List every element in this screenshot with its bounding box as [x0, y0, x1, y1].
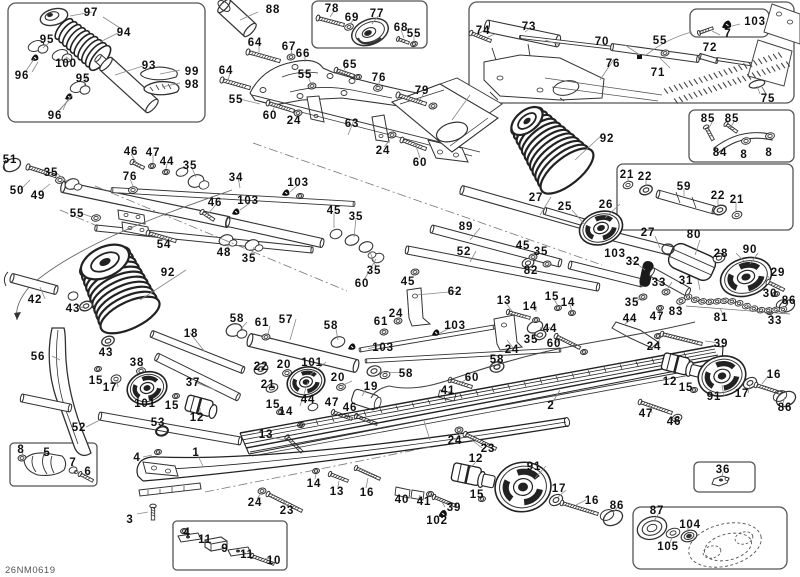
svg-text:12: 12: [663, 376, 677, 388]
svg-text:42: 42: [28, 294, 42, 306]
svg-text:13: 13: [330, 486, 344, 498]
svg-text:44: 44: [301, 394, 315, 406]
svg-text:51: 51: [3, 154, 17, 166]
svg-text:37: 37: [186, 377, 200, 389]
svg-text:62: 62: [448, 286, 462, 298]
svg-text:17: 17: [552, 483, 566, 495]
svg-text:75: 75: [761, 93, 775, 105]
svg-text:48: 48: [217, 247, 231, 259]
svg-text:81: 81: [714, 312, 728, 324]
svg-text:20: 20: [331, 372, 345, 384]
svg-text:64: 64: [248, 37, 262, 49]
svg-text:30: 30: [763, 288, 777, 300]
svg-text:28: 28: [714, 248, 728, 260]
svg-text:46: 46: [208, 197, 222, 209]
svg-text:76: 76: [606, 58, 620, 70]
svg-text:24: 24: [248, 497, 262, 509]
svg-text:58: 58: [324, 320, 338, 332]
svg-text:26: 26: [599, 199, 613, 211]
svg-text:43: 43: [66, 303, 80, 315]
svg-text:57: 57: [279, 314, 293, 326]
svg-text:41: 41: [417, 496, 431, 508]
svg-text:89: 89: [459, 221, 473, 233]
svg-text:17: 17: [735, 388, 749, 400]
svg-text:16: 16: [585, 495, 599, 507]
svg-text:80: 80: [687, 229, 701, 241]
svg-text:84: 84: [713, 147, 727, 159]
svg-text:102: 102: [426, 515, 448, 527]
svg-text:78: 78: [325, 3, 339, 15]
svg-text:24: 24: [376, 145, 390, 157]
svg-text:53: 53: [151, 417, 165, 429]
svg-text:65: 65: [343, 59, 357, 71]
svg-text:24: 24: [389, 308, 403, 320]
svg-text:63: 63: [345, 118, 359, 130]
svg-text:45: 45: [401, 276, 415, 288]
svg-text:19: 19: [364, 381, 378, 393]
svg-text:35: 35: [625, 297, 639, 309]
svg-text:46: 46: [343, 402, 357, 414]
svg-text:45: 45: [327, 205, 341, 217]
svg-text:101: 101: [301, 357, 323, 369]
svg-text:58: 58: [399, 368, 413, 380]
svg-text:69: 69: [345, 12, 359, 24]
svg-text:103: 103: [287, 177, 309, 189]
svg-text:55: 55: [70, 208, 84, 220]
svg-text:32: 32: [626, 256, 640, 268]
svg-text:7: 7: [69, 457, 76, 469]
svg-text:15: 15: [89, 375, 103, 387]
svg-text:20: 20: [277, 359, 291, 371]
svg-text:55: 55: [229, 94, 243, 106]
svg-text:14: 14: [523, 301, 537, 313]
svg-text:74: 74: [476, 25, 490, 37]
svg-text:47: 47: [146, 147, 160, 159]
svg-text:95: 95: [40, 34, 54, 46]
svg-text:4: 4: [133, 452, 140, 464]
svg-text:35: 35: [242, 253, 256, 265]
svg-text:55: 55: [653, 35, 667, 47]
svg-text:91: 91: [707, 391, 721, 403]
svg-text:59: 59: [677, 181, 691, 193]
svg-text:88: 88: [266, 4, 280, 16]
svg-text:52: 52: [457, 246, 471, 258]
svg-text:24: 24: [647, 341, 661, 353]
svg-text:31: 31: [679, 275, 693, 287]
svg-text:14: 14: [561, 297, 575, 309]
svg-text:39: 39: [447, 502, 461, 514]
svg-text:70: 70: [595, 36, 609, 48]
svg-text:9: 9: [221, 543, 228, 555]
svg-text:76: 76: [372, 72, 386, 84]
svg-text:55: 55: [298, 69, 312, 81]
svg-text:8: 8: [740, 149, 747, 161]
svg-text:3: 3: [126, 514, 133, 526]
svg-text:10: 10: [267, 555, 281, 567]
svg-text:85: 85: [725, 113, 739, 125]
svg-text:26NM0619: 26NM0619: [5, 565, 55, 576]
svg-text:52: 52: [72, 422, 86, 434]
svg-text:50: 50: [10, 185, 24, 197]
svg-text:35: 35: [367, 265, 381, 277]
svg-text:8: 8: [17, 444, 24, 456]
svg-text:103: 103: [372, 342, 394, 354]
svg-text:82: 82: [524, 265, 538, 277]
svg-text:6: 6: [84, 466, 91, 478]
svg-text:103: 103: [744, 16, 766, 28]
svg-text:86: 86: [782, 295, 796, 307]
svg-text:24: 24: [448, 435, 462, 447]
svg-text:103: 103: [237, 195, 259, 207]
svg-text:41: 41: [441, 385, 455, 397]
svg-text:18: 18: [184, 328, 198, 340]
svg-text:13: 13: [259, 429, 273, 441]
svg-text:38: 38: [130, 357, 144, 369]
svg-text:73: 73: [522, 21, 536, 33]
svg-text:2: 2: [547, 400, 554, 412]
svg-text:92: 92: [161, 267, 175, 279]
svg-text:35: 35: [183, 160, 197, 172]
svg-text:39: 39: [714, 338, 728, 350]
svg-text:24: 24: [287, 115, 301, 127]
svg-text:34: 34: [229, 172, 243, 184]
svg-text:15: 15: [470, 489, 484, 501]
svg-text:44: 44: [160, 156, 174, 168]
svg-text:16: 16: [360, 487, 374, 499]
svg-text:4: 4: [183, 527, 190, 539]
svg-text:22: 22: [638, 171, 652, 183]
svg-text:79: 79: [415, 85, 429, 97]
svg-text:47: 47: [650, 311, 664, 323]
svg-text:33: 33: [768, 315, 782, 327]
svg-text:47: 47: [639, 408, 653, 420]
svg-text:27: 27: [529, 192, 543, 204]
svg-text:96: 96: [48, 110, 62, 122]
svg-text:86: 86: [610, 500, 624, 512]
svg-text:14: 14: [279, 406, 293, 418]
svg-text:22: 22: [254, 361, 268, 373]
svg-text:60: 60: [465, 372, 479, 384]
svg-text:33: 33: [652, 277, 666, 289]
svg-text:60: 60: [547, 338, 561, 350]
svg-text:44: 44: [543, 323, 557, 335]
svg-text:12: 12: [469, 453, 483, 465]
svg-text:86: 86: [778, 402, 792, 414]
svg-text:60: 60: [355, 278, 369, 290]
svg-text:95: 95: [76, 73, 90, 85]
svg-text:24: 24: [505, 344, 519, 356]
svg-text:54: 54: [157, 239, 171, 251]
svg-text:35: 35: [534, 246, 548, 258]
svg-text:11: 11: [198, 534, 212, 546]
svg-text:15: 15: [679, 382, 693, 394]
svg-text:5: 5: [43, 447, 50, 459]
svg-text:60: 60: [263, 110, 277, 122]
svg-text:103: 103: [604, 248, 626, 260]
svg-text:61: 61: [255, 317, 269, 329]
svg-text:58: 58: [490, 354, 504, 366]
svg-text:55: 55: [407, 28, 421, 40]
svg-text:104: 104: [679, 519, 701, 531]
svg-text:23: 23: [280, 505, 294, 517]
svg-text:92: 92: [600, 133, 614, 145]
svg-text:91: 91: [527, 461, 541, 473]
svg-text:96: 96: [15, 70, 29, 82]
svg-text:45: 45: [516, 240, 530, 252]
svg-text:16: 16: [767, 369, 781, 381]
svg-text:46: 46: [124, 146, 138, 158]
svg-text:21: 21: [620, 169, 634, 181]
svg-text:60: 60: [413, 157, 427, 169]
svg-text:93: 93: [142, 60, 156, 72]
svg-text:15: 15: [165, 400, 179, 412]
svg-text:13: 13: [497, 295, 511, 307]
svg-text:12: 12: [190, 412, 204, 424]
svg-text:100: 100: [55, 58, 77, 70]
svg-text:27: 27: [641, 227, 655, 239]
svg-text:1: 1: [192, 447, 199, 459]
svg-text:67: 67: [282, 41, 296, 53]
svg-text:77: 77: [370, 8, 384, 20]
svg-text:35: 35: [349, 211, 363, 223]
svg-text:94: 94: [117, 27, 131, 39]
svg-text:101: 101: [134, 398, 156, 410]
svg-text:103: 103: [444, 320, 466, 332]
svg-text:98: 98: [185, 79, 199, 91]
svg-text:25: 25: [558, 201, 572, 213]
svg-text:99: 99: [185, 66, 199, 78]
svg-text:22: 22: [711, 190, 725, 202]
svg-text:21: 21: [730, 194, 744, 206]
svg-text:46: 46: [667, 416, 681, 428]
svg-text:49: 49: [31, 190, 45, 202]
svg-text:97: 97: [84, 7, 98, 19]
svg-text:105: 105: [657, 541, 679, 553]
svg-text:40: 40: [395, 494, 409, 506]
svg-text:29: 29: [771, 267, 785, 279]
svg-text:44: 44: [623, 313, 637, 325]
svg-text:83: 83: [669, 306, 683, 318]
svg-text:71: 71: [651, 67, 665, 79]
svg-text:35: 35: [524, 334, 538, 346]
svg-text:8: 8: [765, 147, 772, 159]
svg-text:17: 17: [103, 382, 117, 394]
svg-text:72: 72: [703, 42, 717, 54]
svg-text:66: 66: [296, 48, 310, 60]
svg-text:85: 85: [701, 113, 715, 125]
svg-text:58: 58: [230, 313, 244, 325]
svg-text:56: 56: [31, 351, 45, 363]
svg-text:76: 76: [123, 171, 137, 183]
svg-text:87: 87: [650, 505, 664, 517]
svg-text:14: 14: [307, 478, 321, 490]
svg-text:61: 61: [374, 316, 388, 328]
svg-text:47: 47: [325, 397, 339, 409]
svg-text:90: 90: [743, 244, 757, 256]
svg-text:21: 21: [261, 379, 275, 391]
svg-text:64: 64: [219, 65, 233, 77]
svg-text:36: 36: [716, 464, 730, 476]
svg-text:11: 11: [240, 549, 254, 561]
svg-text:43: 43: [99, 347, 113, 359]
svg-text:7: 7: [724, 28, 731, 40]
svg-text:15: 15: [545, 291, 559, 303]
svg-text:35: 35: [44, 167, 58, 179]
